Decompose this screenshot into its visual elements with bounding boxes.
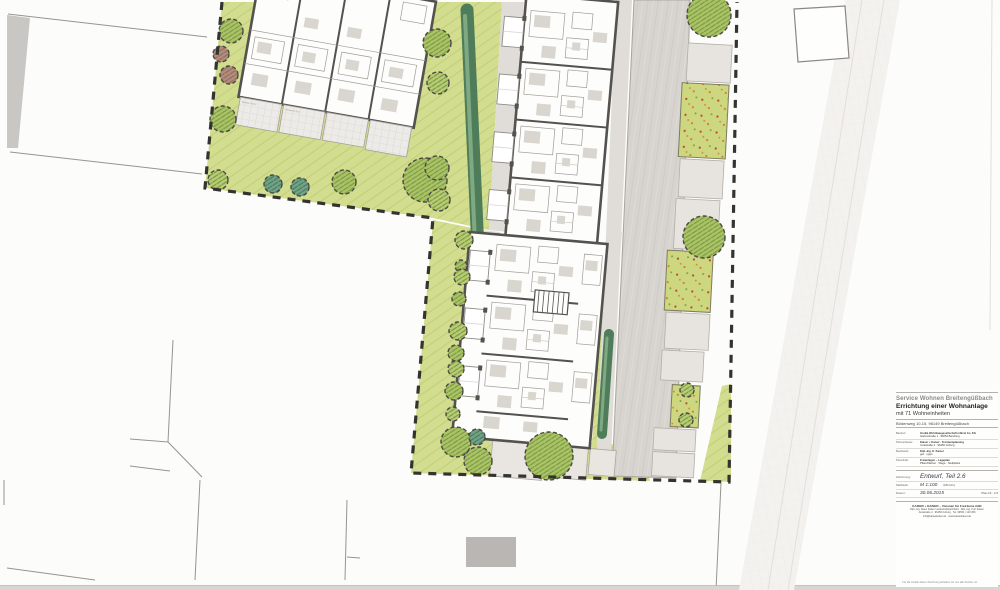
neighbor-building-footprint [466,537,516,567]
drawing-value-handwritten: Entwurf, Teil 2.6 [920,473,966,480]
tree-icon [425,156,449,180]
tree-icon [687,0,731,37]
planting-bed [664,250,713,312]
tree-icon [427,72,449,94]
tree-icon [423,29,451,57]
scale-label: Maßstab: [896,483,920,487]
info-row: Planverfasser: Kaiser + Kaiser · Freirau… [896,440,998,449]
tree-icon [332,170,356,194]
copyright-footnote: Für die Inhalte dieser Zeichnung behalte… [880,581,1000,584]
info-label: Planverfasser: [896,441,920,447]
tree-icon [213,46,229,62]
tree-icon [469,429,485,445]
tree-icon [446,407,460,421]
drawing-label: Zeichnung: [896,475,920,479]
info-row: Bauherr: GroBa Wohnbaugesellschaft mbH &… [896,431,998,440]
title-block-drawing-section: Zeichnung: Entwurf, Teil 2.6 Maßstab: M … [896,470,998,498]
stairwell [533,290,569,315]
info-value2: Gartenstraße 1 · 96052 Bamberg [920,435,960,438]
building-row-c [452,232,607,448]
title-block: Service Wohnen Breitengüßbach Errichtung… [896,391,998,587]
scale-value-handwritten: M 1:100 [920,483,937,488]
date-label: Datum: [896,491,920,495]
info-value2: Pflanzflächen · Wege · Stellplätze [920,462,960,465]
project-owner: Service Wohnen Breitengüßbach [896,394,998,402]
tree-icon [454,269,470,285]
tree-icon [445,382,463,400]
tree-icon [679,413,693,427]
tree-icon [220,66,238,84]
site-plan-drawing: Terrasse 12,5 m² Terrasse 12,5 m² [0,0,1000,590]
tree-icon [219,19,243,43]
tree-icon [448,361,464,377]
info-label: Bearbeitet: [896,450,920,456]
project-title: Errichtung einer Wohnanlage [896,403,998,410]
info-label: Planinhalt: [896,459,920,465]
site-plan-page: Terrasse 12,5 m² Terrasse 12,5 m² [0,0,1000,590]
tree-icon [208,170,228,190]
tree-icon [448,345,464,361]
tree-icon [264,175,282,193]
info-value2: Jurastraße 4 · 96450 Coburg [920,444,955,447]
format-value: (DIN A1) [943,483,955,487]
tree-icon [680,383,694,397]
info-row: Bearbeitet: Dipl.-Ing. K. Kaiser gez. / … [896,449,998,458]
info-label: Bauherr: [896,432,920,438]
info-value2: gez. / gepr. [920,453,933,456]
project-address: Bödenweg 10-15, 96149 Breitengüßbach [896,419,998,428]
tree-icon [210,106,236,132]
tree-icon [449,322,467,340]
neighbor-building-outline [794,6,849,62]
plan-no-label: Plan-Nr.: [981,491,993,495]
planting-bed [678,83,729,159]
date-value-handwritten: 30.06.2015 [920,491,944,496]
tree-icon [428,189,450,211]
info-row: Planinhalt: Freianlagen – Lageplan Pflan… [896,458,998,467]
boundary-lawn-wedge [700,384,731,482]
tree-icon [452,292,466,306]
tree-icon [455,231,473,249]
title-block-info-rows: Bauherr: GroBa Wohnbaugesellschaft mbH &… [896,431,998,467]
tree-icon [525,432,573,480]
title-block-firm-section: KAISER + KAISER – Visionen für Freiräume… [896,501,998,518]
tree-icon [683,216,725,258]
project-subtitle: mit 71 Wohneinheiten [896,411,998,417]
firm-line4: info@kaiserkaiser.de · www.kaiserkaiser.… [896,515,998,518]
plan-no-value: 2.6 [994,491,998,495]
tree-icon [291,178,309,196]
tree-icon [464,447,492,475]
